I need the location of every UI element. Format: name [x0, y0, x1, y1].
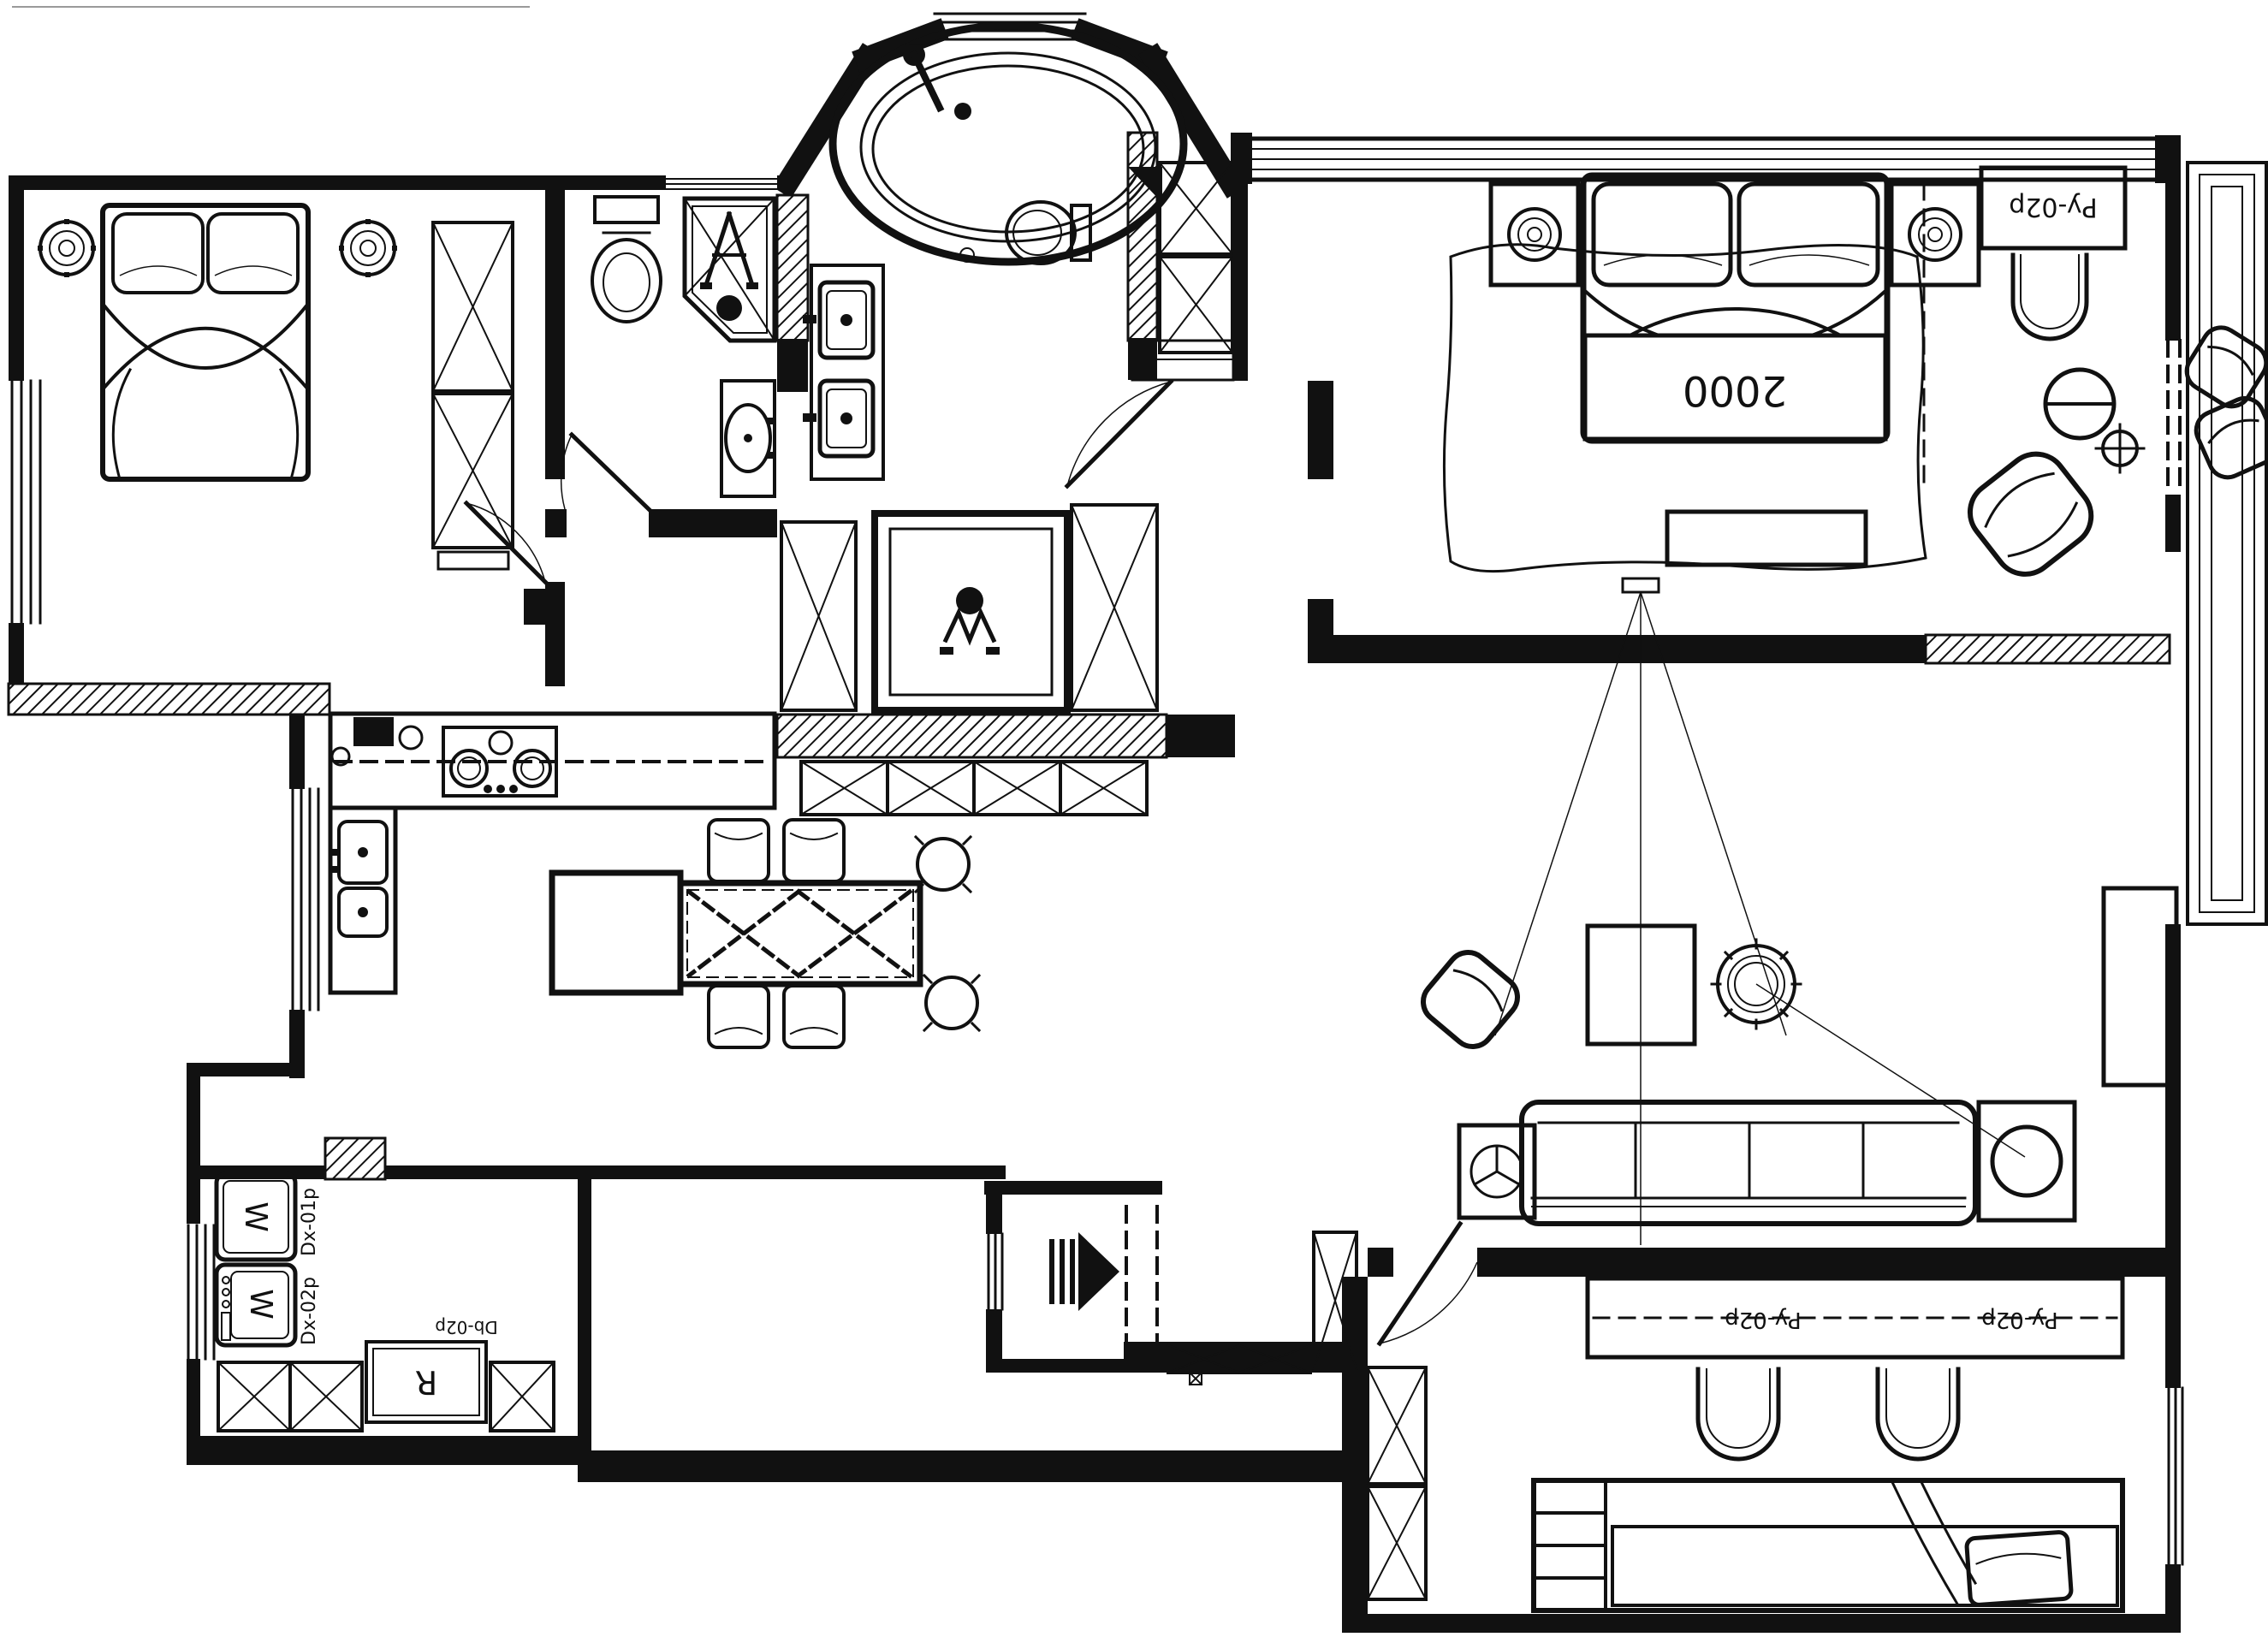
washing-machine-bottom: W [217, 1265, 295, 1345]
floor-plan-drawing: 2000 Py-02p [0, 0, 2268, 1637]
bed-end-bench [1667, 512, 1866, 565]
window-bedroom2-left [12, 381, 40, 623]
corner-shower [685, 199, 775, 341]
toilet [592, 197, 661, 322]
door-main-bath [1067, 382, 1171, 486]
wall-hatch-laundry [325, 1138, 385, 1179]
built-in-sink-black [353, 717, 394, 746]
control-knob [400, 727, 422, 749]
nightstand-lamp [38, 219, 96, 277]
cabinet-code: Db-02p [435, 1317, 497, 1337]
sofa [1522, 1102, 1975, 1224]
bar-stool [924, 976, 979, 1030]
lounge-armchair [1957, 442, 2103, 586]
wardrobe-bedroom-second [433, 222, 513, 569]
room-kids: Py-02p Py-02p [1368, 1278, 2123, 1610]
desk-label-right: Py-02p [1981, 1307, 2058, 1332]
side-table-lamp-right [1979, 1102, 2075, 1220]
dining-chair [709, 820, 769, 881]
dining-table [680, 883, 920, 984]
entry-arrow [1049, 1232, 1119, 1311]
washer-code: Dx-02p [299, 1277, 320, 1345]
master-cabinet-label: Py-02p [2009, 192, 2097, 222]
decor-line [1756, 984, 2025, 1157]
desk-chair [1878, 1369, 1958, 1459]
door-kids-room [1380, 1224, 1477, 1343]
opening-balcony-dashed [2168, 341, 2180, 495]
nightstand [1491, 184, 1578, 285]
room-master-bedroom: 2000 Py-02p [1444, 168, 2144, 586]
bar-stool [916, 837, 971, 892]
wall-hatch-bedroom2 [9, 684, 330, 715]
double-bed [103, 205, 308, 479]
hall-bench-cabinets [801, 762, 1147, 815]
window-kids-right [2169, 1388, 2182, 1564]
floor-plan-page: 2000 Py-02p [0, 0, 2268, 1637]
dining-chair [709, 986, 769, 1047]
bunk-bed [1534, 1480, 2123, 1610]
window-kitchen-left [293, 789, 318, 1010]
shower-drain-icon [946, 613, 994, 640]
dining-chair [784, 820, 844, 881]
opening-entry-dashed [1126, 1207, 1157, 1342]
cabinet-letter: R [415, 1363, 437, 1401]
room-living [1415, 578, 2176, 1245]
washer-code: Dx-01p [299, 1188, 320, 1256]
kitchen-sink-counter [329, 808, 395, 993]
wall-hatch-master-bottom [1926, 635, 2170, 663]
nightstand [1891, 184, 1979, 285]
room-dining [552, 820, 979, 1047]
kitchen-island [552, 873, 680, 993]
desk-label-left: Py-02p [1725, 1307, 1802, 1332]
washing-machine-top: W [217, 1174, 295, 1260]
dining-chair [784, 986, 844, 1047]
door-ensuite [561, 435, 649, 509]
window-balcony [2188, 163, 2266, 924]
nightstand-lamp [339, 219, 397, 277]
room-bedroom-second [38, 205, 546, 625]
sitting-corner [1957, 370, 2144, 586]
room-bathroom-main [781, 26, 1184, 710]
doors [466, 382, 1477, 1343]
window-laundry-left [188, 1225, 214, 1359]
shower-room [875, 513, 1067, 710]
wall-mounted-unit [524, 589, 546, 625]
lounge-pillow-chair [1415, 944, 1526, 1055]
fridge-cabinet: Db-02p R [366, 1317, 498, 1422]
room-bathroom-ensuite [592, 197, 775, 496]
kids-desk: Py-02p Py-02p [1588, 1278, 2123, 1357]
window-entry-porch [989, 1234, 1002, 1309]
bed-size-label: 2000 [1683, 366, 1787, 414]
vanity-sink [721, 381, 775, 496]
window-ensuite-top [666, 175, 777, 190]
desk-chair [1698, 1369, 1778, 1459]
ceiling-projection-lines [1495, 578, 1786, 1245]
double-vanity [803, 265, 883, 479]
wall-hatch-bath-bottom [777, 715, 1167, 757]
room-laundry: W Dx-01p W Dx-02p Db-02p R [217, 1174, 554, 1431]
washer-letter: W [238, 1201, 273, 1232]
master-chair [2013, 255, 2087, 339]
washer-letter: W [243, 1289, 278, 1320]
master-bed: 2000 [1583, 175, 1887, 441]
